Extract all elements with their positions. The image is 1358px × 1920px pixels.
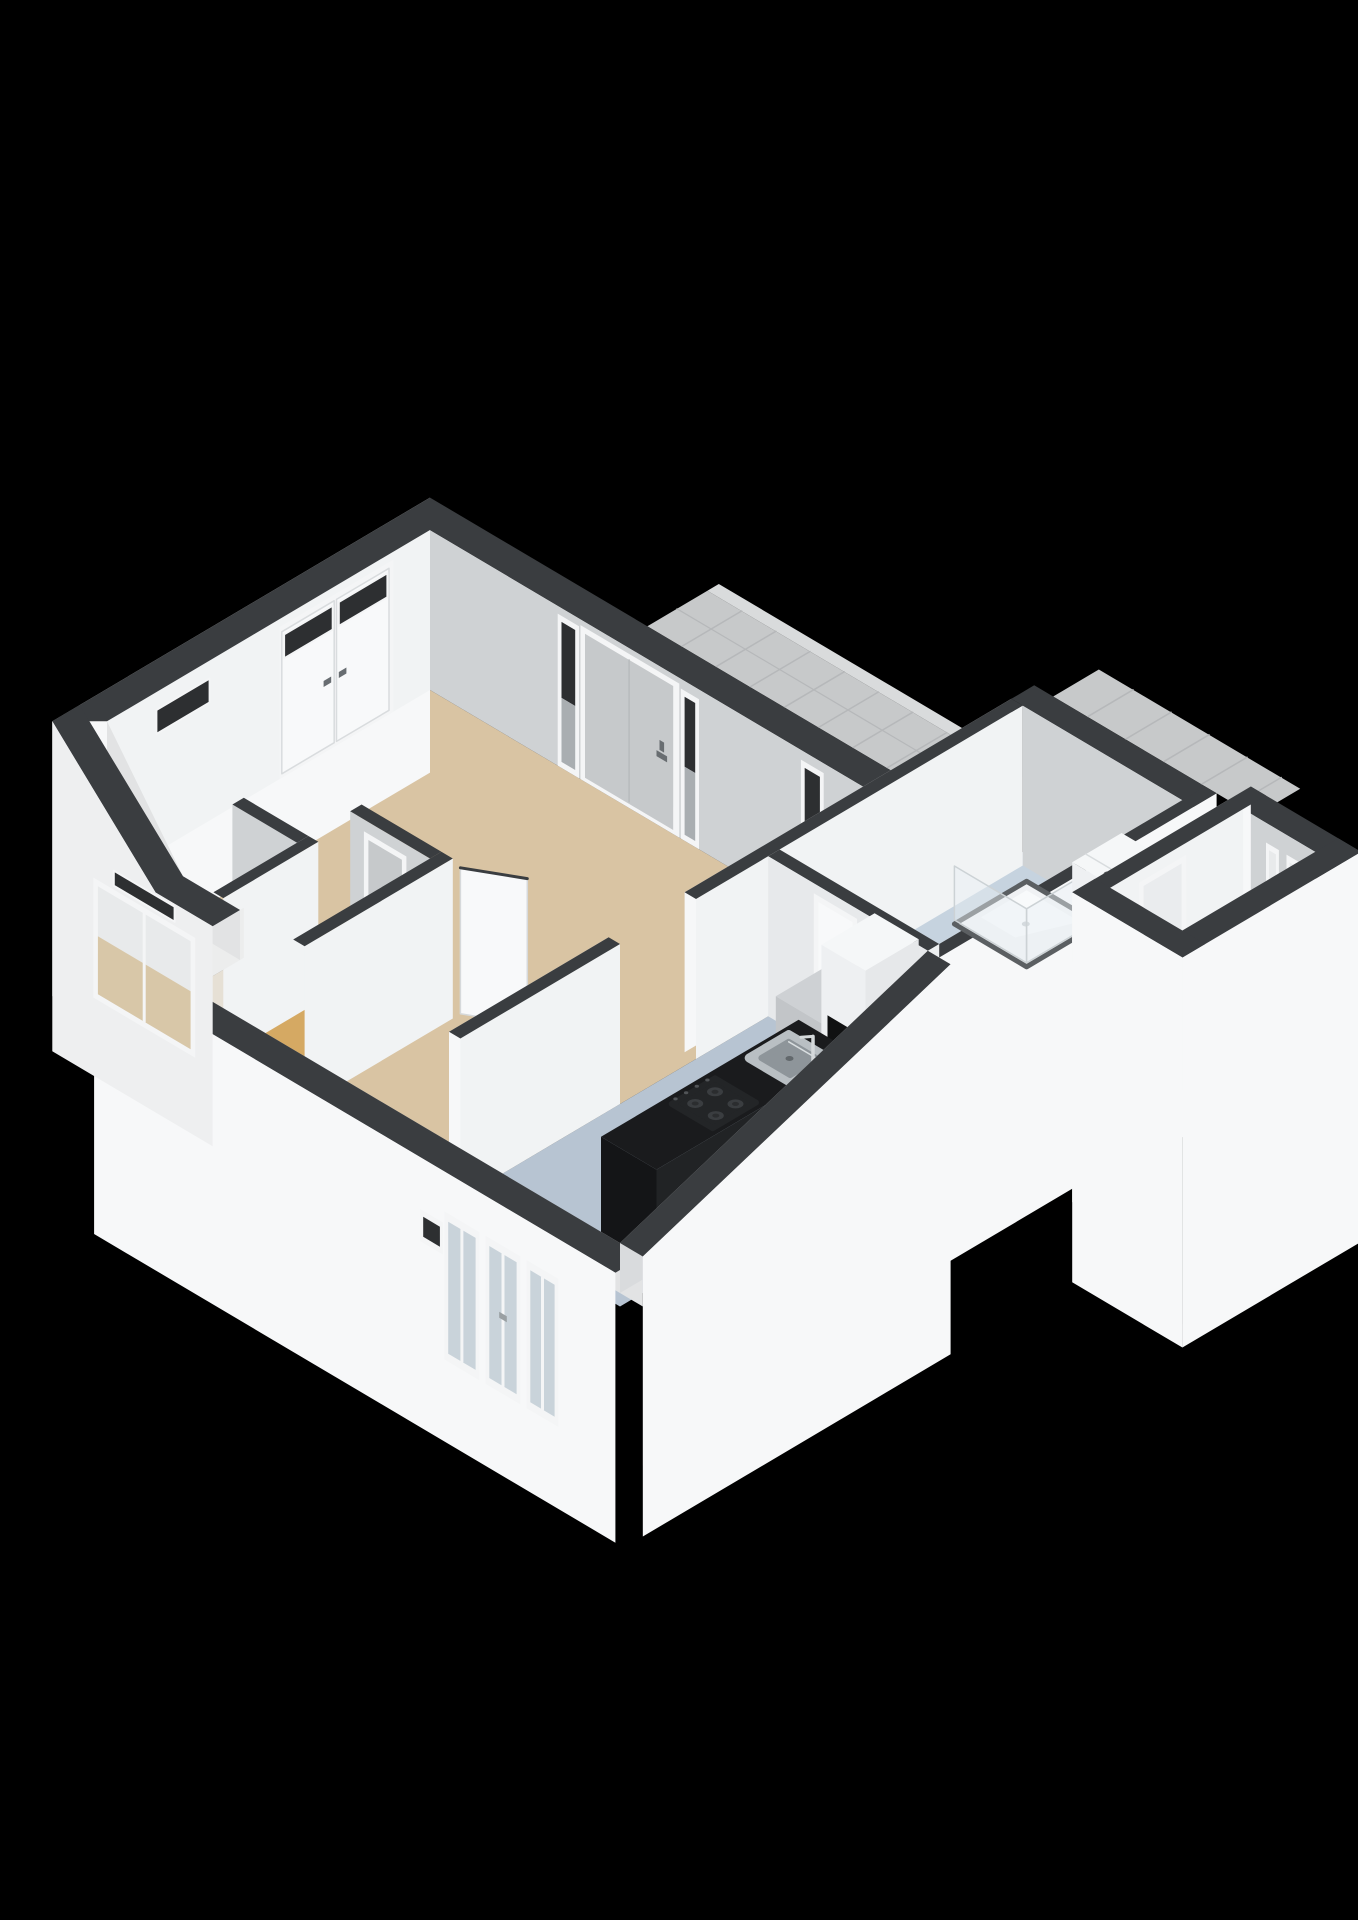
hob-burner-core bbox=[692, 1102, 699, 1106]
apartment-floorplan bbox=[0, 0, 1358, 1920]
entrance-sidelight-glass-upper bbox=[685, 697, 696, 773]
entrance-sidelight-glass-lower bbox=[685, 767, 696, 841]
hob-knob bbox=[684, 1091, 688, 1094]
entrance-sidelight-glass-lower bbox=[562, 698, 576, 770]
hob-knob bbox=[695, 1085, 699, 1088]
floorplan-3d-render bbox=[0, 0, 1358, 1920]
floorplan-figure bbox=[0, 0, 1358, 1920]
hob-burner-core bbox=[732, 1102, 739, 1106]
sink-drain bbox=[786, 1056, 794, 1061]
entrance-sidelight-glass-upper bbox=[562, 622, 576, 706]
storage-south-wall-outer bbox=[1072, 892, 1182, 1347]
screenshot-root bbox=[0, 0, 1358, 1920]
faucet-spout bbox=[801, 1036, 813, 1037]
hob-burner-core bbox=[712, 1090, 719, 1094]
storage-room bbox=[1072, 787, 1358, 1348]
hob-knob bbox=[705, 1079, 709, 1082]
hob-burner-core bbox=[712, 1114, 719, 1118]
hob-knob bbox=[673, 1097, 677, 1100]
